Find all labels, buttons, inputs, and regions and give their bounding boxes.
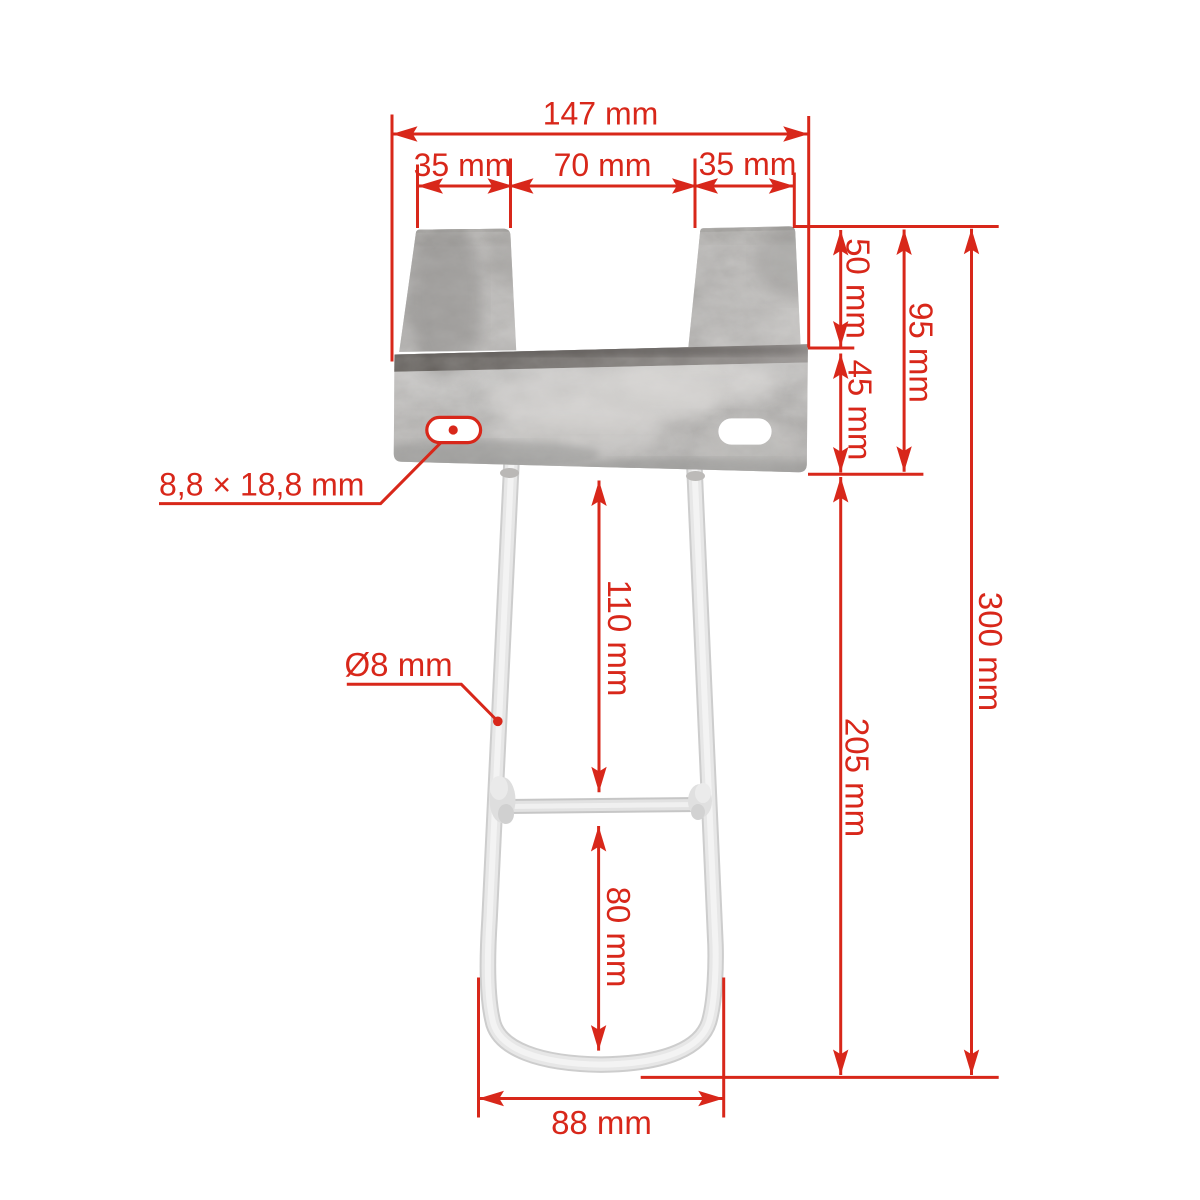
- svg-text:300 mm: 300 mm: [972, 592, 1009, 711]
- svg-text:45 mm: 45 mm: [842, 360, 879, 461]
- svg-text:80 mm: 80 mm: [600, 887, 637, 988]
- svg-text:95 mm: 95 mm: [903, 302, 940, 403]
- svg-text:147 mm: 147 mm: [543, 96, 659, 132]
- svg-text:35 mm: 35 mm: [699, 146, 797, 182]
- svg-text:88 mm: 88 mm: [551, 1104, 652, 1141]
- svg-text:Ø8 mm: Ø8 mm: [345, 646, 453, 683]
- svg-text:110 mm: 110 mm: [601, 580, 638, 697]
- svg-text:70 mm: 70 mm: [554, 147, 652, 183]
- svg-text:35 mm: 35 mm: [414, 147, 512, 183]
- svg-text:50 mm: 50 mm: [840, 238, 877, 339]
- svg-text:205 mm: 205 mm: [839, 718, 876, 837]
- svg-text:8,8 × 18,8 mm: 8,8 × 18,8 mm: [159, 467, 364, 503]
